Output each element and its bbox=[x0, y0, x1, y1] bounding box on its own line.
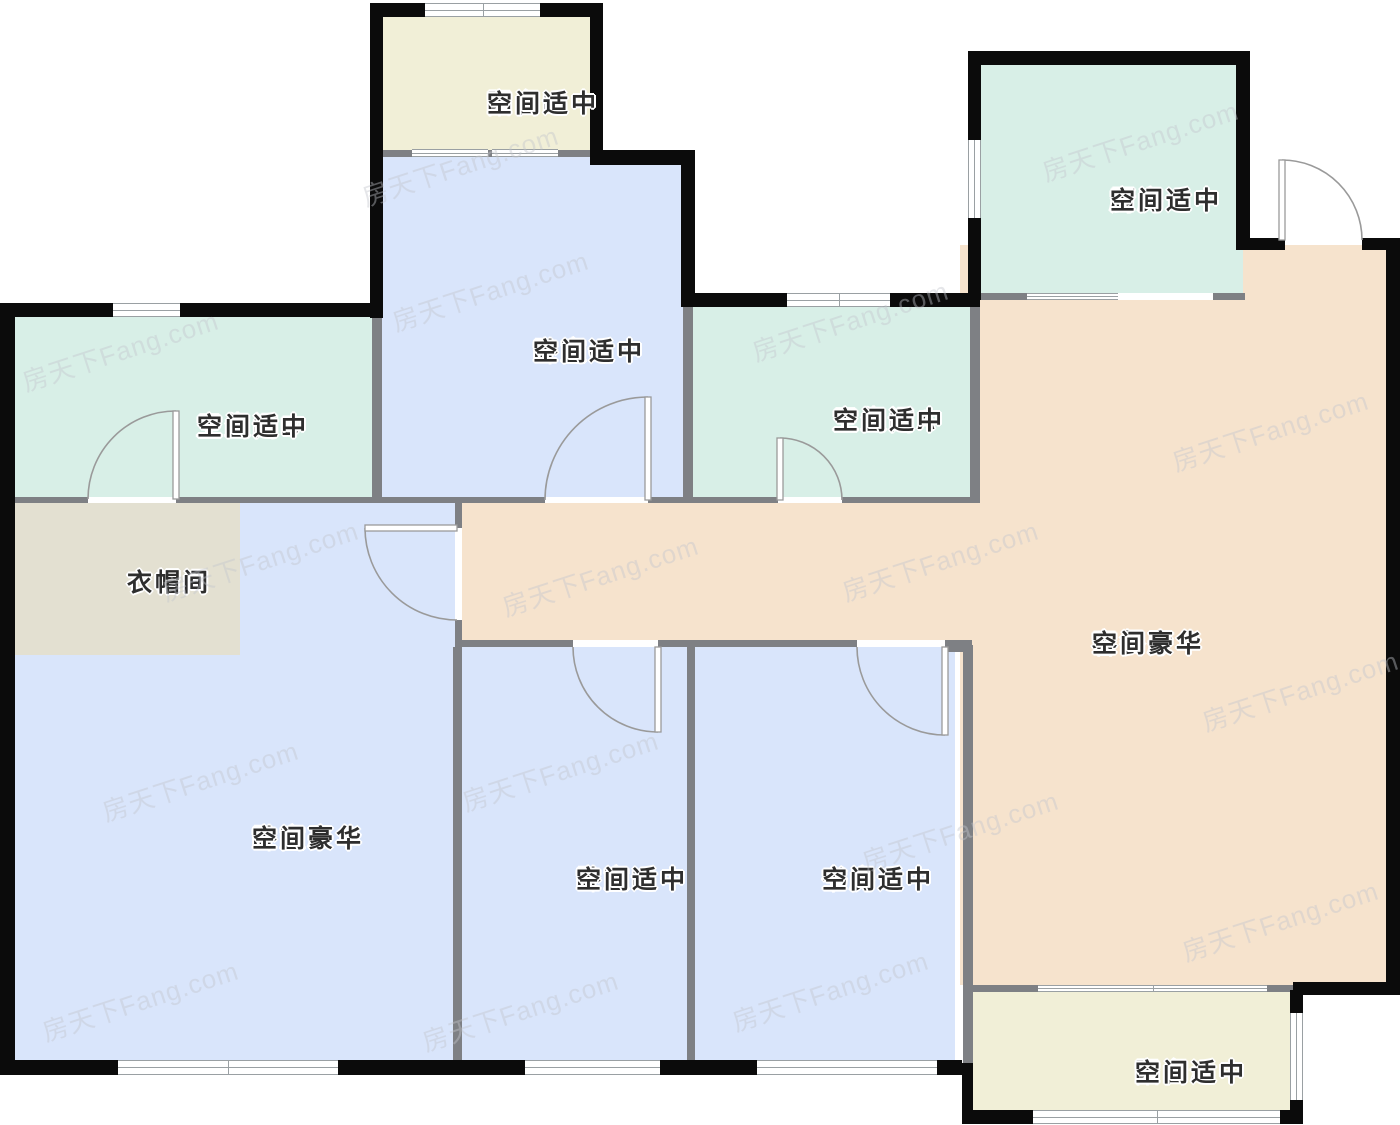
room-size: 空间适中 bbox=[822, 865, 934, 896]
room-size: 空间适中 bbox=[533, 337, 645, 368]
room-name: 衣帽间 bbox=[127, 568, 211, 599]
door-leaf-bedroom-a bbox=[365, 525, 457, 531]
room-size: 空间适中 bbox=[487, 89, 599, 120]
room-size: 空间适中 bbox=[197, 412, 309, 443]
room-size: 空间适中 bbox=[833, 406, 945, 437]
door-leaf-bedroom-c bbox=[645, 397, 651, 500]
door-leaf-entry bbox=[1279, 160, 1285, 240]
door-swings-layer bbox=[0, 0, 1400, 1125]
door-arc-bathroom-a bbox=[780, 438, 842, 500]
room-size: 空间适中 bbox=[1110, 186, 1222, 217]
door-leaf-study bbox=[942, 647, 948, 735]
door-arc-study bbox=[857, 647, 945, 735]
door-leaf-bathroom-b bbox=[173, 411, 179, 499]
door-arc-bedroom-c bbox=[545, 397, 648, 500]
door-arc-bedroom-a bbox=[365, 528, 457, 620]
room-size: 空间适中 bbox=[1135, 1058, 1247, 1089]
door-arc-entry bbox=[1282, 160, 1362, 240]
room-size: 空间豪华 bbox=[252, 824, 364, 855]
floorplan-canvas: 阳台B 空间适中 厨房 空间适中 卧室C 空间适中 卫生间B 空间适中 卫生间A… bbox=[0, 0, 1400, 1125]
door-leaf-bathroom-a bbox=[777, 438, 783, 500]
door-arc-bedroom-b bbox=[573, 647, 658, 732]
door-arc-bathroom-b bbox=[88, 411, 176, 499]
door-leaf-bedroom-b bbox=[655, 647, 661, 732]
room-size: 空间豪华 bbox=[1092, 629, 1204, 660]
room-size: 空间适中 bbox=[576, 865, 688, 896]
